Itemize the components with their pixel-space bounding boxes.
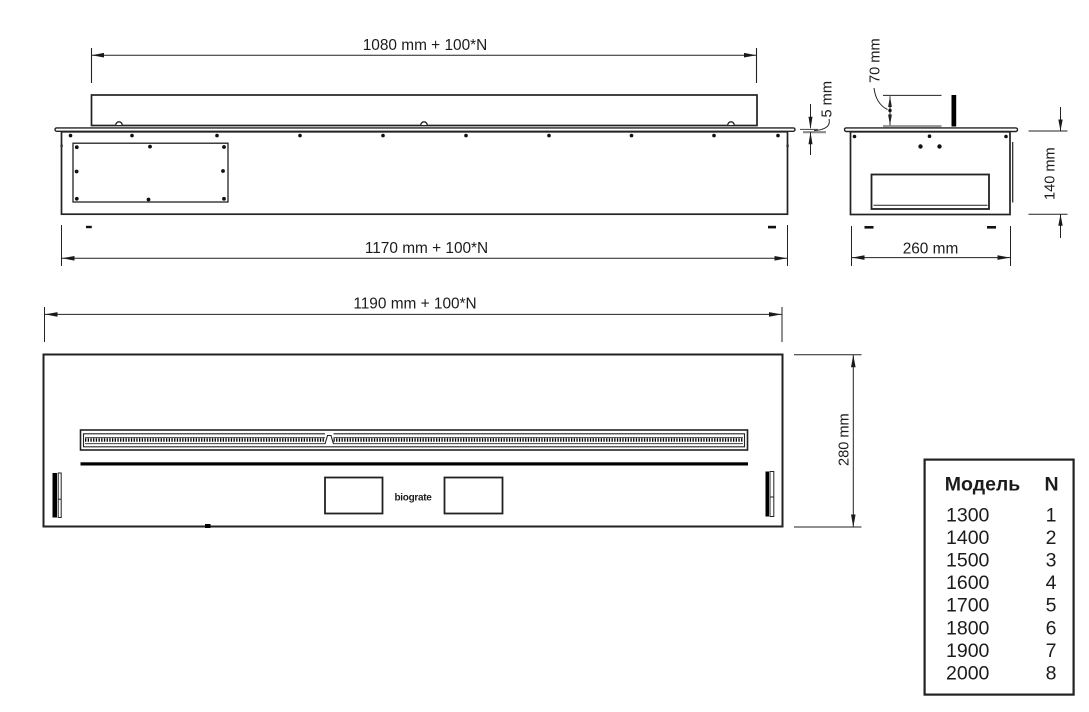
svg-text:1080 mm + 100*N: 1080 mm + 100*N — [363, 37, 487, 54]
svg-text:1500: 1500 — [946, 550, 990, 572]
svg-text:5: 5 — [1046, 595, 1057, 617]
svg-text:2000: 2000 — [946, 663, 990, 685]
svg-text:4: 4 — [1046, 572, 1057, 594]
svg-text:5 mm: 5 mm — [820, 81, 836, 117]
svg-text:1800: 1800 — [946, 617, 990, 639]
svg-text:7: 7 — [1046, 640, 1057, 662]
svg-text:8: 8 — [1046, 663, 1057, 685]
svg-text:260 mm: 260 mm — [903, 241, 959, 258]
svg-text:1300: 1300 — [946, 504, 990, 526]
svg-text:70 mm: 70 mm — [868, 38, 884, 83]
svg-text:1700: 1700 — [946, 595, 990, 617]
svg-text:1170 mm + 100*N: 1170 mm + 100*N — [365, 240, 488, 257]
svg-text:140 mm: 140 mm — [1043, 147, 1059, 200]
svg-text:N: N — [1044, 474, 1058, 496]
svg-text:Модель: Модель — [945, 474, 1021, 496]
svg-text:1400: 1400 — [946, 527, 990, 549]
svg-text:1900: 1900 — [946, 640, 990, 662]
svg-text:biograte: biograte — [394, 493, 432, 504]
svg-text:3: 3 — [1046, 550, 1057, 572]
svg-text:2: 2 — [1046, 527, 1057, 549]
svg-text:1600: 1600 — [946, 572, 990, 594]
svg-text:6: 6 — [1046, 617, 1057, 639]
svg-text:1: 1 — [1046, 504, 1057, 526]
svg-text:1190 mm + 100*N: 1190 mm + 100*N — [353, 296, 476, 313]
svg-text:280 mm: 280 mm — [837, 413, 853, 466]
